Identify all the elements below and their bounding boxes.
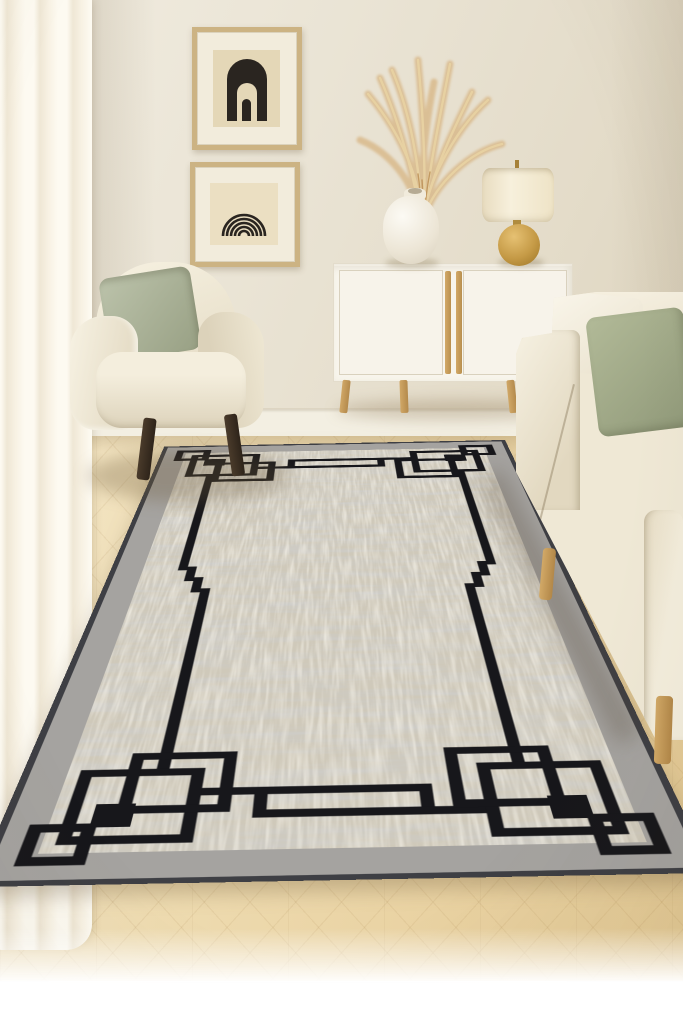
arch-inner-shape (242, 99, 251, 121)
sideboard-leg (399, 380, 408, 413)
sideboard-handle-left (445, 271, 451, 374)
sofa-leg-right (654, 696, 673, 765)
rainbow-art-panel (210, 183, 278, 245)
lamp-shade (482, 168, 554, 222)
bottom-white-fade (0, 928, 683, 1024)
vase (383, 196, 439, 264)
vase-opening (408, 188, 422, 194)
armchair-floor-shadow (88, 450, 288, 502)
curtain (0, 0, 92, 950)
frame-arch-print (192, 27, 302, 150)
sideboard-door-left (339, 270, 443, 375)
living-room-photo (0, 0, 683, 1024)
frame-rainbow-print (190, 162, 300, 267)
lamp-base (498, 224, 540, 266)
sideboard-handle-right (456, 271, 462, 374)
sofa-sage-pillow (585, 306, 683, 437)
arch-art-panel (213, 50, 280, 127)
rainbow-arcs (221, 198, 267, 238)
